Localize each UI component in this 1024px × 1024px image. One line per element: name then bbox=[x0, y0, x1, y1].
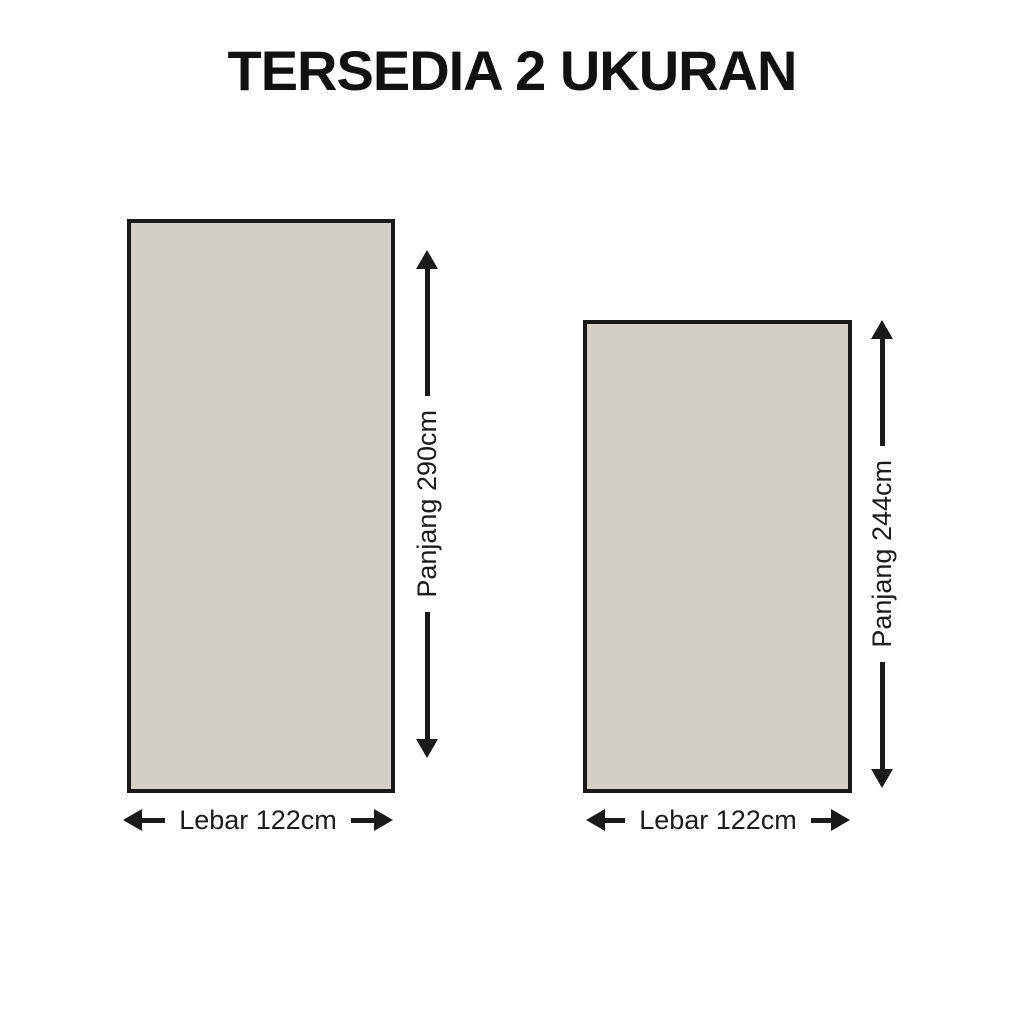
arrow-shaft bbox=[351, 818, 374, 823]
size1-width-label: Lebar 122cm bbox=[179, 807, 337, 834]
arrowhead-left bbox=[586, 809, 605, 831]
size2-length-dimension: Panjang 244cm bbox=[867, 320, 897, 788]
arrow-shaft bbox=[605, 818, 625, 823]
arrow-shaft bbox=[425, 269, 430, 396]
arrow-shaft bbox=[811, 818, 831, 823]
arrowhead-down bbox=[416, 739, 438, 758]
arrowhead-up bbox=[871, 320, 893, 339]
size1-length-dimension: Panjang 290cm bbox=[412, 250, 442, 758]
arrow-up-icon bbox=[412, 250, 442, 396]
size2-width-dimension: Lebar 122cm bbox=[586, 801, 850, 839]
size2-width-label: Lebar 122cm bbox=[639, 807, 797, 834]
arrowhead-up bbox=[416, 250, 438, 269]
size1-rectangle bbox=[127, 219, 395, 793]
arrowhead-right bbox=[831, 809, 850, 831]
arrow-shaft bbox=[880, 339, 885, 446]
arrow-down-icon bbox=[412, 612, 442, 758]
arrow-down-icon bbox=[867, 662, 897, 788]
arrow-left-icon bbox=[123, 801, 165, 839]
arrow-right-icon bbox=[811, 801, 850, 839]
arrow-shaft bbox=[142, 818, 165, 823]
arrowhead-left bbox=[123, 809, 142, 831]
size2-length-label: Panjang 244cm bbox=[869, 460, 896, 648]
arrow-left-icon bbox=[586, 801, 625, 839]
arrow-shaft bbox=[425, 612, 430, 739]
size2-rectangle bbox=[583, 320, 852, 793]
arrow-up-icon bbox=[867, 320, 897, 446]
arrowhead-down bbox=[871, 769, 893, 788]
arrowhead-right bbox=[374, 809, 393, 831]
arrow-shaft bbox=[880, 662, 885, 769]
arrow-right-icon bbox=[351, 801, 393, 839]
size1-width-dimension: Lebar 122cm bbox=[123, 801, 393, 839]
size1-length-label: Panjang 290cm bbox=[414, 410, 441, 598]
diagram-title: TERSEDIA 2 UKURAN bbox=[0, 40, 1024, 102]
size-diagram-canvas: TERSEDIA 2 UKURAN Panjang 290cm Lebar 12… bbox=[0, 0, 1024, 1024]
